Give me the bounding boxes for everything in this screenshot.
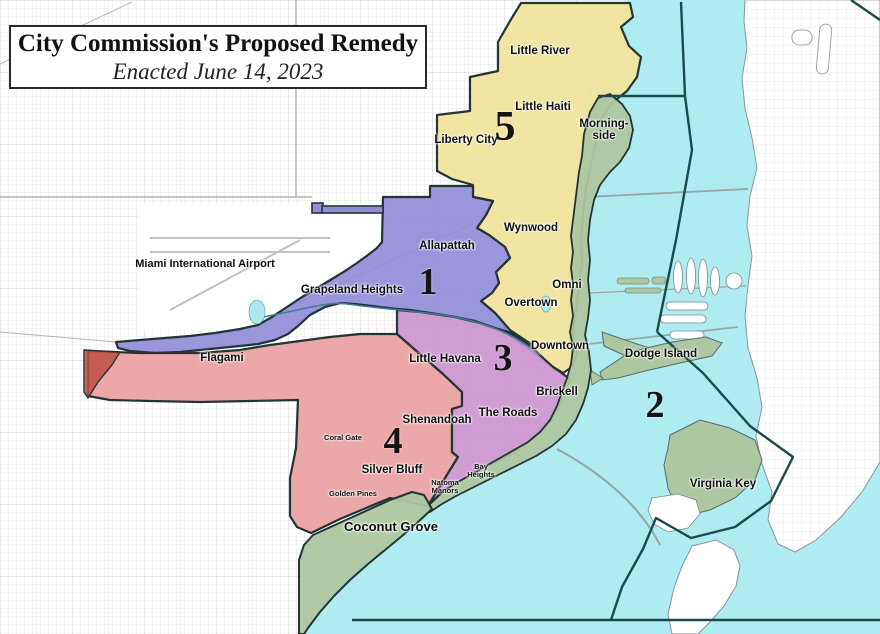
label-grapeland-heights: Grapeland Heights	[301, 284, 403, 296]
label-flagami: Flagami	[200, 352, 243, 364]
map-title-box: City Commission's Proposed Remedy Enacte…	[9, 25, 427, 89]
district-2-number: 2	[646, 383, 665, 427]
district-1-number: 1	[419, 260, 438, 304]
label-natoma-manors: Natoma Manors	[426, 479, 464, 495]
label-little-havana: Little Havana	[409, 353, 481, 365]
map-title: City Commission's Proposed Remedy	[11, 30, 425, 58]
label-virginia-key: Virginia Key	[690, 478, 756, 490]
label-little-river: Little River	[510, 45, 569, 57]
label-silver-bluff: Silver Bluff	[362, 464, 423, 476]
label-coconut-grove: Coconut Grove	[344, 520, 438, 534]
district-4-number: 4	[384, 419, 403, 463]
beach-marina-blob	[792, 30, 812, 45]
label-dodge-island: Dodge Island	[625, 348, 697, 360]
label-bay-heights: Bay Heights	[464, 463, 498, 479]
label-little-haiti: Little Haiti	[515, 101, 571, 113]
miami-districts-map	[0, 0, 880, 634]
label-brickell: Brickell	[536, 386, 578, 398]
district-5-number: 5	[495, 103, 516, 151]
label-the-roads: The Roads	[479, 407, 538, 419]
label-shenandoah: Shenandoah	[402, 414, 471, 426]
label-miami-international-airport: Miami International Airport	[135, 259, 275, 271]
label-liberty-city: Liberty City	[434, 134, 497, 146]
label-wynwood: Wynwood	[504, 222, 558, 234]
label-coral-gate: Coral Gate	[324, 434, 362, 442]
label-morningside: Morning-side	[576, 118, 632, 142]
label-omni: Omni	[552, 279, 581, 291]
blue-lagoon-lake	[249, 300, 265, 324]
label-allapattah: Allapattah	[419, 240, 475, 252]
label-golden-pines: Golden Pines	[329, 490, 377, 498]
district-3-number: 3	[494, 336, 513, 380]
label-downtown: Downtown	[531, 340, 589, 352]
label-overtown: Overtown	[504, 297, 557, 309]
map-canvas: City Commission's Proposed Remedy Enacte…	[0, 0, 880, 634]
district-1-panhandle-strip	[322, 206, 383, 213]
map-subtitle: Enacted June 14, 2023	[11, 59, 425, 85]
